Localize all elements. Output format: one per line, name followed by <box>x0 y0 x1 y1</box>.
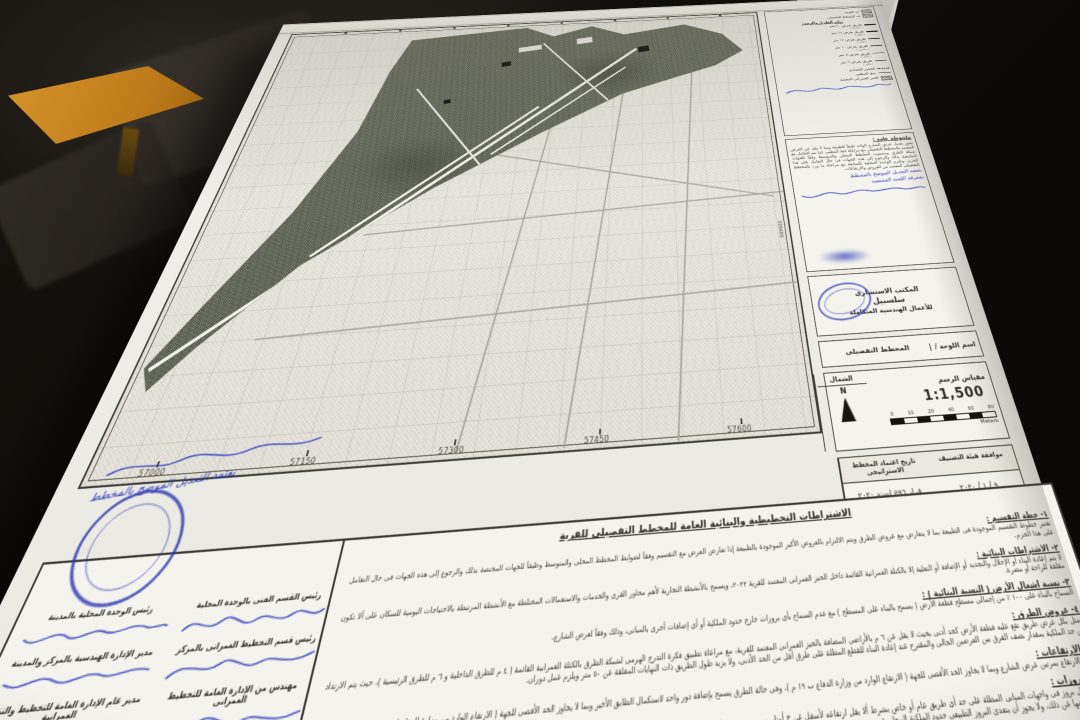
y-coordinate-label: 376400 <box>777 220 785 238</box>
coordinate-tick <box>741 418 743 424</box>
consultant-stamp-icon <box>812 277 879 327</box>
landmark-building <box>637 45 649 52</box>
north-arrow-icon <box>838 397 856 422</box>
landmark-building <box>502 61 512 67</box>
signatures-panel: رئيس القسم الفنى بالوحدة المحلية رئيس ال… <box>0 538 356 720</box>
sheet-name-label: اسم اللوحة / <box>929 340 977 350</box>
scale-tick: 10 <box>907 410 914 416</box>
x-coordinate-label: 57600 <box>727 424 753 434</box>
road-16-symbol-icon <box>866 31 878 33</box>
parcel-line <box>364 190 783 235</box>
parcel-line <box>254 281 797 340</box>
x-coordinate-label: 57450 <box>584 435 610 446</box>
official-round-stamp-icon <box>56 477 193 623</box>
road-12-symbol-icon <box>868 38 880 39</box>
legend-box: حد اللوحة حد المخطط التفصيلى بيان الطرق … <box>764 7 912 137</box>
scale-tick: 20 <box>927 409 934 415</box>
road-20-symbol-icon <box>864 24 876 26</box>
scale-tick: 80 <box>987 404 995 410</box>
hatch-swatch-icon <box>862 14 873 18</box>
scale-label: مقياس الرسم <box>937 373 986 384</box>
parcel-line <box>454 148 774 196</box>
parcel-line <box>678 68 693 441</box>
village-road <box>309 106 540 258</box>
regulation-line-symbol-icon <box>878 72 890 73</box>
urban-zone-swatch-icon <box>881 75 893 80</box>
sheet-name-value: المخطط التفصيلى <box>824 343 931 359</box>
scale-box: مقياس الرسم 1:1,500 0 10 20 40 60 80 Met… <box>823 361 1010 451</box>
parcel-line <box>563 90 624 448</box>
village-open-plaza <box>519 44 542 52</box>
village-road <box>490 66 626 154</box>
photo-scene: وزارة الدفاع الهيئة الهندسية للقوات المس… <box>0 0 1080 720</box>
road-10-symbol-icon <box>870 45 882 46</box>
landmark-building <box>444 99 451 104</box>
scale-tick: 40 <box>947 407 955 413</box>
coordinate-tick <box>599 429 601 435</box>
road-8-symbol-icon <box>873 52 885 53</box>
scale-value: 1:1,500 <box>922 383 987 403</box>
consultant-box: المكتب الاستشارى سلسبيل للأعمال الهندسية… <box>807 267 974 337</box>
scale-tick: 60 <box>967 406 975 412</box>
census-dots-symbol-icon <box>877 67 889 69</box>
scale-tick: 0 <box>890 412 894 418</box>
road-6-symbol-icon <box>875 60 887 61</box>
x-coordinate-label: 57300 <box>437 446 464 457</box>
village-open-plaza <box>577 37 593 44</box>
ink-blot <box>817 248 872 265</box>
north-letter: N <box>818 386 869 398</box>
general-note-box: ملحوظة عامة : يجوز تعديل عرض الشارع الوا… <box>785 132 955 272</box>
